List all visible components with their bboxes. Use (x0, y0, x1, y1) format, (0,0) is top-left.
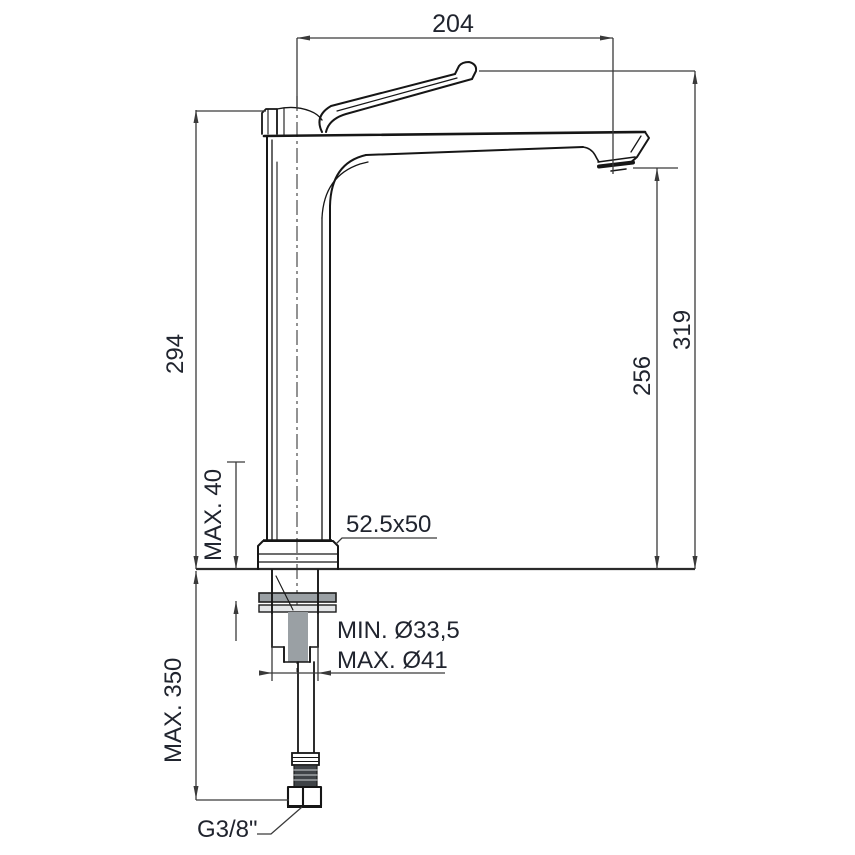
spout-underside (366, 147, 583, 155)
spout-top-edge (264, 132, 645, 136)
mounting-washer (259, 593, 336, 612)
hose-braid (294, 765, 317, 787)
dim-max40-label: MAX. 40 (200, 469, 227, 561)
faucet-body (267, 137, 330, 540)
faucet-base-flange (258, 540, 338, 570)
dim-319-label: 319 (669, 310, 696, 350)
hose-collar (292, 753, 319, 765)
dimension-arrowheads (194, 36, 698, 800)
dim-max350-label: MAX. 350 (160, 658, 187, 763)
hose-nut (287, 787, 322, 807)
shank-rod-shade (288, 612, 308, 662)
thread-label: G3/8" (197, 816, 258, 843)
leader-base-size (336, 538, 437, 544)
dim-204-label: 204 (432, 10, 474, 38)
handle-bottom-edge (326, 79, 472, 132)
dim-256-label: 256 (629, 356, 656, 396)
handle-tip (455, 62, 476, 79)
dim-294-label: 294 (162, 334, 189, 374)
cartridge-collar (262, 107, 322, 135)
hole-max-label: MAX. Ø41 (337, 647, 448, 674)
spout-tip-outline (629, 132, 649, 164)
aerator-band (599, 163, 633, 167)
leader-thread (257, 807, 302, 834)
dim-max40 (227, 462, 245, 641)
threaded-shank (272, 570, 318, 662)
technical-drawing-canvas: 204 294 319 256 MAX. 40 52.5x50 MIN. Ø33… (0, 0, 855, 855)
faucet-spout (264, 132, 649, 218)
hole-min-label: MIN. Ø33,5 (337, 617, 460, 644)
dim-319 (479, 71, 695, 569)
faucet-handle (319, 62, 476, 132)
base-size-label: 52.5x50 (346, 511, 431, 538)
drawing-page: 204 294 319 256 MAX. 40 52.5x50 MIN. Ø33… (0, 0, 855, 855)
dim-204 (297, 38, 613, 174)
supply-hose (292, 662, 319, 787)
dimension-lines (196, 38, 695, 834)
